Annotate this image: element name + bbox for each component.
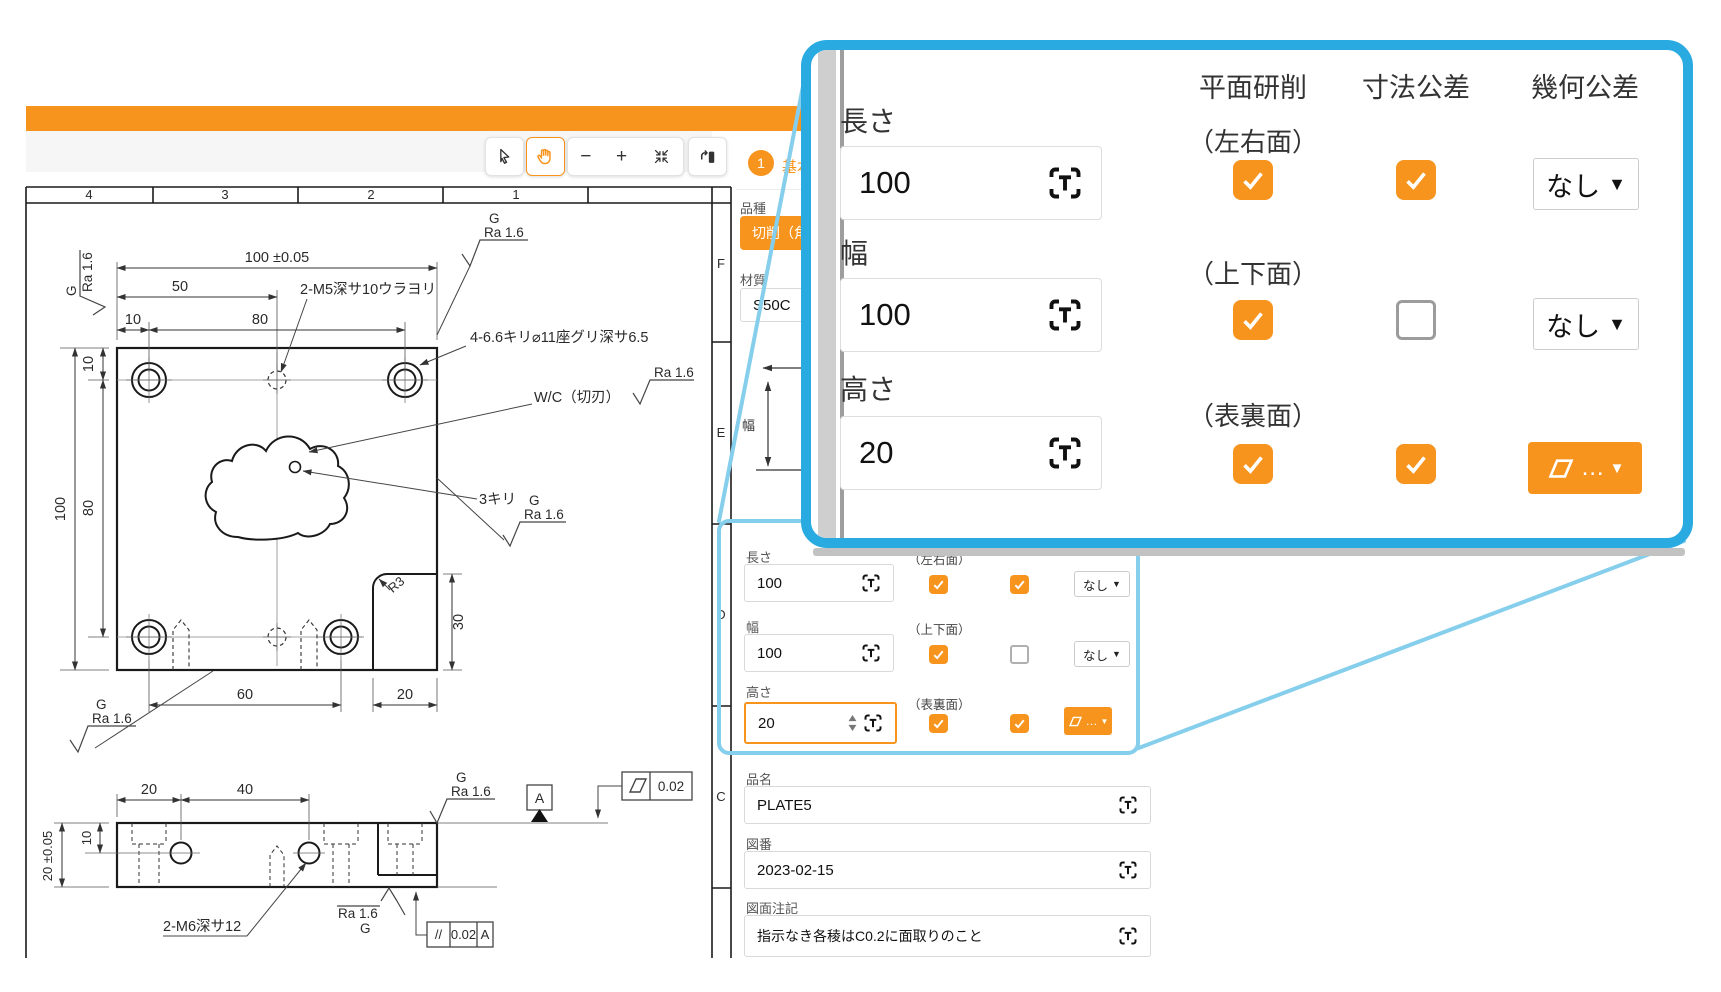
tolerance-column-header: 寸法公差 bbox=[1341, 66, 1491, 105]
grinding-column-header: 平面研削 bbox=[1178, 66, 1328, 105]
callout-m6: 2-M6深サ12 bbox=[163, 918, 241, 935]
length-value: 100 bbox=[859, 165, 1047, 201]
height-grinding-checkbox bbox=[1233, 444, 1273, 484]
height-tolerance-checkbox[interactable] bbox=[1010, 714, 1029, 733]
dim-label: 100 bbox=[53, 497, 69, 521]
width-tolerance-checkbox[interactable] bbox=[1010, 645, 1029, 664]
text-capture-icon bbox=[1047, 165, 1083, 201]
length-label: 長さ bbox=[840, 100, 896, 140]
dim-label: 50 bbox=[172, 279, 188, 295]
text-capture-icon[interactable] bbox=[861, 643, 881, 663]
zoom-out-button[interactable]: − bbox=[580, 147, 591, 166]
chevron-down-icon: ▼ bbox=[1112, 649, 1121, 659]
dropdown-value: … bbox=[1581, 454, 1605, 482]
rotate-page-button[interactable] bbox=[688, 137, 727, 176]
parallelism-value: 0.02 bbox=[451, 927, 476, 942]
geometric-column-header: 幾何公差 bbox=[1510, 66, 1660, 105]
width-geometric-dropdown[interactable]: なし ▼ bbox=[1074, 641, 1130, 667]
product-name-value: PLATE5 bbox=[757, 797, 1118, 814]
check-icon bbox=[1013, 717, 1026, 730]
length-grinding-checkbox bbox=[1233, 160, 1273, 200]
width-grinding-checkbox[interactable] bbox=[929, 645, 948, 664]
surface-ra: Ra 1.6 bbox=[524, 507, 564, 522]
surface-symbol-bottomleft bbox=[70, 726, 136, 752]
drawing-no-field[interactable]: 2023-02-15 bbox=[744, 851, 1151, 889]
length-value: 100 bbox=[757, 575, 861, 592]
chevron-down-icon: ▼ bbox=[1608, 314, 1626, 335]
length-field: 100 bbox=[840, 146, 1102, 220]
height-geometric-dropdown[interactable]: … ▼ bbox=[1064, 707, 1112, 735]
height-field[interactable]: 20 bbox=[744, 702, 897, 744]
surface-symbol-topright bbox=[462, 240, 528, 266]
height-face-label: （表裏面） bbox=[908, 694, 971, 713]
step-badge: 1 bbox=[748, 150, 774, 176]
dim-label: 20 ±0.05 bbox=[40, 831, 55, 882]
select-tool-button[interactable] bbox=[485, 137, 524, 176]
stepper-down-icon bbox=[848, 724, 857, 731]
check-icon bbox=[1013, 578, 1026, 591]
check-icon bbox=[1240, 451, 1266, 477]
zone-right: F bbox=[717, 256, 725, 271]
length-tolerance-checkbox[interactable] bbox=[1010, 575, 1029, 594]
zone-right: E bbox=[717, 425, 726, 440]
parallelism-icon bbox=[1546, 458, 1576, 479]
text-capture-icon bbox=[1047, 435, 1083, 471]
surface-g: G bbox=[489, 211, 500, 226]
width-value: 100 bbox=[757, 645, 861, 662]
callout-3kiri: 3キリ bbox=[479, 492, 516, 508]
zoom-controls: − + bbox=[567, 137, 684, 176]
surface-ra: Ra 1.6 bbox=[338, 906, 378, 921]
height-label: 高さ bbox=[746, 682, 772, 701]
height-value: 20 bbox=[859, 435, 1047, 471]
callout-m5: 2-M5深サ10ウラヨリ bbox=[300, 281, 436, 298]
length-tolerance-checkbox bbox=[1396, 160, 1436, 200]
parallelism-datum: A bbox=[481, 927, 490, 942]
scrollbar-track[interactable] bbox=[818, 50, 836, 538]
sketch-width-label: 幅 bbox=[742, 418, 755, 433]
dropdown-value: なし bbox=[1083, 575, 1108, 594]
zoom-in-button[interactable]: + bbox=[616, 147, 627, 166]
dim-label: 30 bbox=[451, 614, 467, 630]
height-face-label: （表裏面） bbox=[1178, 396, 1328, 433]
width-field: 100 bbox=[840, 278, 1102, 352]
note-value: 指示なき各稜はC0.2に面取りのこと bbox=[757, 926, 1118, 946]
magnifier-overlay: 平面研削 寸法公差 幾何公差 長さ 100 （左右面） なし ▼ 幅 100 bbox=[801, 40, 1693, 548]
check-icon bbox=[1240, 307, 1266, 333]
text-capture-icon[interactable] bbox=[1118, 860, 1138, 880]
length-field[interactable]: 100 bbox=[744, 564, 894, 602]
surface-symbol-right bbox=[503, 522, 566, 546]
surface-g: G bbox=[529, 493, 540, 508]
dropdown-value: なし bbox=[1546, 305, 1600, 344]
surface-g: G bbox=[360, 921, 371, 936]
text-capture-icon[interactable] bbox=[1118, 795, 1138, 815]
chevron-down-icon: ▼ bbox=[1112, 579, 1121, 589]
check-icon bbox=[932, 648, 945, 661]
surface-ra: Ra 1.6 bbox=[80, 252, 95, 292]
length-geometric-dropdown: なし ▼ bbox=[1533, 158, 1639, 210]
cursor-icon bbox=[495, 147, 515, 167]
text-capture-icon[interactable] bbox=[861, 573, 881, 593]
height-geometric-dropdown: … ▼ bbox=[1528, 442, 1642, 494]
width-face-label: （上下面） bbox=[1178, 254, 1328, 291]
check-icon bbox=[932, 578, 945, 591]
height-tolerance-checkbox bbox=[1396, 444, 1436, 484]
zone-right: D bbox=[716, 607, 725, 622]
drawing-no-value: 2023-02-15 bbox=[757, 862, 1118, 879]
datum-triangle bbox=[531, 809, 548, 822]
parallelism-symbol: // bbox=[435, 927, 443, 942]
dim-label: 100 ±0.05 bbox=[245, 250, 309, 266]
text-capture-icon[interactable] bbox=[863, 713, 883, 733]
surface-g: G bbox=[96, 697, 107, 712]
dropdown-value: なし bbox=[1083, 645, 1108, 664]
product-name-field[interactable]: PLATE5 bbox=[744, 786, 1151, 824]
hand-icon bbox=[535, 146, 556, 167]
check-icon bbox=[1403, 167, 1429, 193]
check-icon bbox=[1240, 167, 1266, 193]
flatness-value: 0.02 bbox=[658, 779, 684, 794]
callout-wc: W/C（切刃） bbox=[534, 389, 620, 406]
datum-a-label: A bbox=[535, 790, 545, 806]
rotate-icon bbox=[698, 147, 718, 167]
pan-tool-button[interactable] bbox=[526, 137, 565, 176]
number-stepper[interactable] bbox=[848, 715, 857, 731]
magnifier-shadow bbox=[813, 548, 1685, 556]
surface-g: G bbox=[64, 285, 79, 296]
material-label: 材質 bbox=[740, 270, 766, 289]
surface-ra: Ra 1.6 bbox=[484, 225, 524, 240]
chevron-down-icon: ▼ bbox=[1610, 460, 1625, 477]
surface-g: G bbox=[456, 770, 467, 785]
chevron-down-icon: ▼ bbox=[1101, 717, 1109, 726]
stepper-up-icon bbox=[848, 715, 857, 722]
height-grinding-checkbox[interactable] bbox=[929, 714, 948, 733]
category-label: 品種 bbox=[740, 198, 766, 217]
height-value: 20 bbox=[758, 715, 848, 732]
callout-counterbore: 4-6.6キリ⌀11座グリ深サ6.5 bbox=[470, 329, 649, 346]
width-field[interactable]: 100 bbox=[744, 634, 894, 672]
flatness-frame: 0.02 bbox=[598, 772, 692, 818]
dim-label: 80 bbox=[252, 312, 268, 328]
surface-symbol-wc bbox=[633, 380, 694, 404]
dim-label: 20 bbox=[397, 687, 413, 703]
side-view: 20 40 10 20 ±0.05 2-M6深サ12 A Ra 1.6 G bbox=[40, 770, 692, 947]
parallelism-icon bbox=[1068, 716, 1083, 727]
dim-label: 10 bbox=[79, 831, 94, 845]
fit-to-screen-icon[interactable] bbox=[652, 147, 671, 166]
text-capture-icon bbox=[1047, 297, 1083, 333]
dropdown-value: … bbox=[1086, 714, 1098, 728]
width-label: 幅 bbox=[840, 232, 868, 272]
plan-view: 100 ±0.05 50 10 80 100 80 10 60 20 30 R3 bbox=[53, 211, 694, 752]
text-capture-icon[interactable] bbox=[1118, 926, 1138, 946]
length-face-label: （左右面） bbox=[1178, 122, 1328, 159]
width-tolerance-checkbox bbox=[1396, 300, 1436, 340]
width-geometric-dropdown: なし ▼ bbox=[1533, 298, 1639, 350]
zone-top: 4 bbox=[85, 187, 92, 202]
dim-label: 10 bbox=[125, 312, 141, 328]
check-icon bbox=[932, 717, 945, 730]
surface-ra: Ra 1.6 bbox=[92, 711, 132, 726]
chevron-down-icon: ▼ bbox=[1608, 174, 1626, 195]
dim-label: 80 bbox=[81, 500, 97, 516]
height-label: 高さ bbox=[840, 368, 896, 408]
check-icon bbox=[1403, 451, 1429, 477]
dim-label: 60 bbox=[237, 687, 253, 703]
surface-symbol-sideright bbox=[430, 799, 495, 823]
zone-right: C bbox=[716, 789, 725, 804]
zone-top: 2 bbox=[367, 187, 374, 202]
app-root: 4 3 2 1 F E D C bbox=[0, 0, 1721, 992]
zone-top: 3 bbox=[221, 187, 228, 202]
zone-top: 1 bbox=[512, 187, 519, 202]
dim-label: 10 bbox=[81, 356, 97, 372]
surface-ra: Ra 1.6 bbox=[451, 784, 491, 799]
parallelism-frame: // 0.02 A bbox=[416, 892, 493, 947]
width-value: 100 bbox=[859, 297, 1047, 333]
dim-label: 40 bbox=[237, 782, 253, 798]
note-field[interactable]: 指示なき各稜はC0.2に面取りのこと bbox=[744, 915, 1151, 957]
length-geometric-dropdown[interactable]: なし ▼ bbox=[1074, 571, 1130, 597]
length-grinding-checkbox[interactable] bbox=[929, 575, 948, 594]
width-grinding-checkbox bbox=[1233, 300, 1273, 340]
surface-ra: Ra 1.6 bbox=[654, 365, 694, 380]
dropdown-value: なし bbox=[1546, 165, 1600, 204]
height-field: 20 bbox=[840, 416, 1102, 490]
width-face-label: （上下面） bbox=[908, 619, 971, 638]
dim-label: 20 bbox=[141, 782, 157, 798]
